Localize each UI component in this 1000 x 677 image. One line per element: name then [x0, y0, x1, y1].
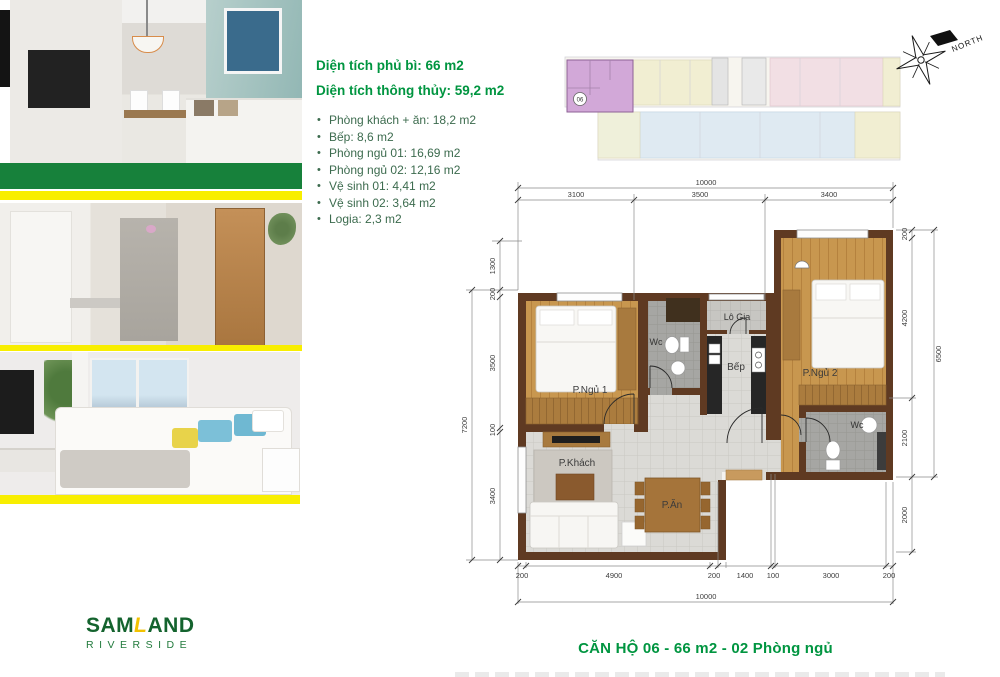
room-label-living: P.Khách: [559, 458, 596, 469]
floor-plan-svg: 06 NORTH: [0, 0, 1000, 677]
room-label-bedroom1: P.Ngủ 1: [573, 384, 608, 396]
room-label-bedroom2: P.Ngủ 2: [803, 367, 838, 379]
entry-bridge: [766, 440, 781, 472]
cropped-text-strip: [455, 672, 945, 677]
hall-floor: [648, 395, 700, 432]
dim-left-4: 100: [488, 424, 497, 437]
toilet: [665, 337, 679, 354]
cabinet: [618, 308, 636, 390]
sink: [671, 361, 685, 375]
room-label-wc1: Wc: [650, 337, 663, 347]
highlighted-unit-06: 06: [567, 60, 633, 112]
room-label-dining: P.Ăn: [662, 498, 682, 511]
dim-bottom-6: 3000: [823, 571, 840, 580]
samland-logo: SAMLAND RIVERSIDE: [86, 615, 236, 651]
desk: [783, 290, 800, 360]
dim-right-total: 6500: [934, 346, 943, 363]
dim-bottom-3: 200: [708, 571, 721, 580]
dim-bottom-5: 100: [767, 571, 780, 580]
sofa: [530, 502, 618, 548]
dim-right-4: 2000: [900, 507, 909, 524]
shelf: [877, 432, 886, 470]
loggia-railing: [709, 294, 764, 300]
plan-caption: CĂN HỘ 06 - 66 m2 - 02 Phòng ngủ: [518, 640, 893, 657]
room-label-loggia: Lô Gia: [724, 312, 751, 322]
room-label-kitchen: Bếp: [727, 361, 745, 373]
dim-right-3: 2100: [900, 430, 909, 447]
dim-left-1: 1300: [488, 258, 497, 275]
logo-part-and: AND: [148, 614, 195, 637]
logo-subtitle: RIVERSIDE: [86, 639, 236, 651]
dim-bottom-2: 4900: [606, 571, 623, 580]
floor-plan: P.Ngủ 1 P.Ngủ 2 P.Khách P.Ăn Bếp Lô Gia …: [460, 178, 943, 605]
toilet: [826, 441, 840, 459]
logo-wordmark: SAMLAND: [86, 615, 236, 637]
north-compass: NORTH: [888, 27, 985, 94]
dim-top-3: 3400: [821, 190, 838, 199]
stove: [752, 348, 765, 372]
mini-floor-overview: 06: [565, 57, 900, 160]
dim-right-2: 4200: [900, 310, 909, 327]
dim-bottom-7: 200: [883, 571, 896, 580]
dark-cabinet: [666, 298, 700, 322]
tv: [552, 436, 600, 443]
dim-left-3: 3500: [488, 355, 497, 372]
coffee-table: [556, 474, 594, 500]
dim-bottom-total: 10000: [696, 592, 717, 601]
dim-top-1: 3100: [568, 190, 585, 199]
dim-bottom-1: 200: [516, 571, 529, 580]
kitchen-living-connector: [700, 415, 707, 480]
dim-left-total: 7200: [460, 417, 469, 434]
dim-top-total: 10000: [696, 178, 717, 187]
room-label-wc2: Wc: [851, 420, 864, 430]
dim-bottom-4: 1400: [737, 571, 754, 580]
dim-right-1: 200: [900, 228, 909, 241]
bedroom1-furniture: [536, 306, 636, 392]
bedroom1-wardrobe: [526, 398, 638, 424]
north-label: NORTH: [950, 33, 984, 54]
dim-top-2: 3500: [692, 190, 709, 199]
dim-left-5: 3400: [488, 488, 497, 505]
dim-left-2: 200: [488, 288, 497, 301]
entry-doormat: [726, 470, 762, 480]
bedroom2-wardrobe: [799, 385, 886, 405]
logo-part-sam: SAM: [86, 614, 134, 637]
unit-number-label: 06: [577, 98, 584, 104]
